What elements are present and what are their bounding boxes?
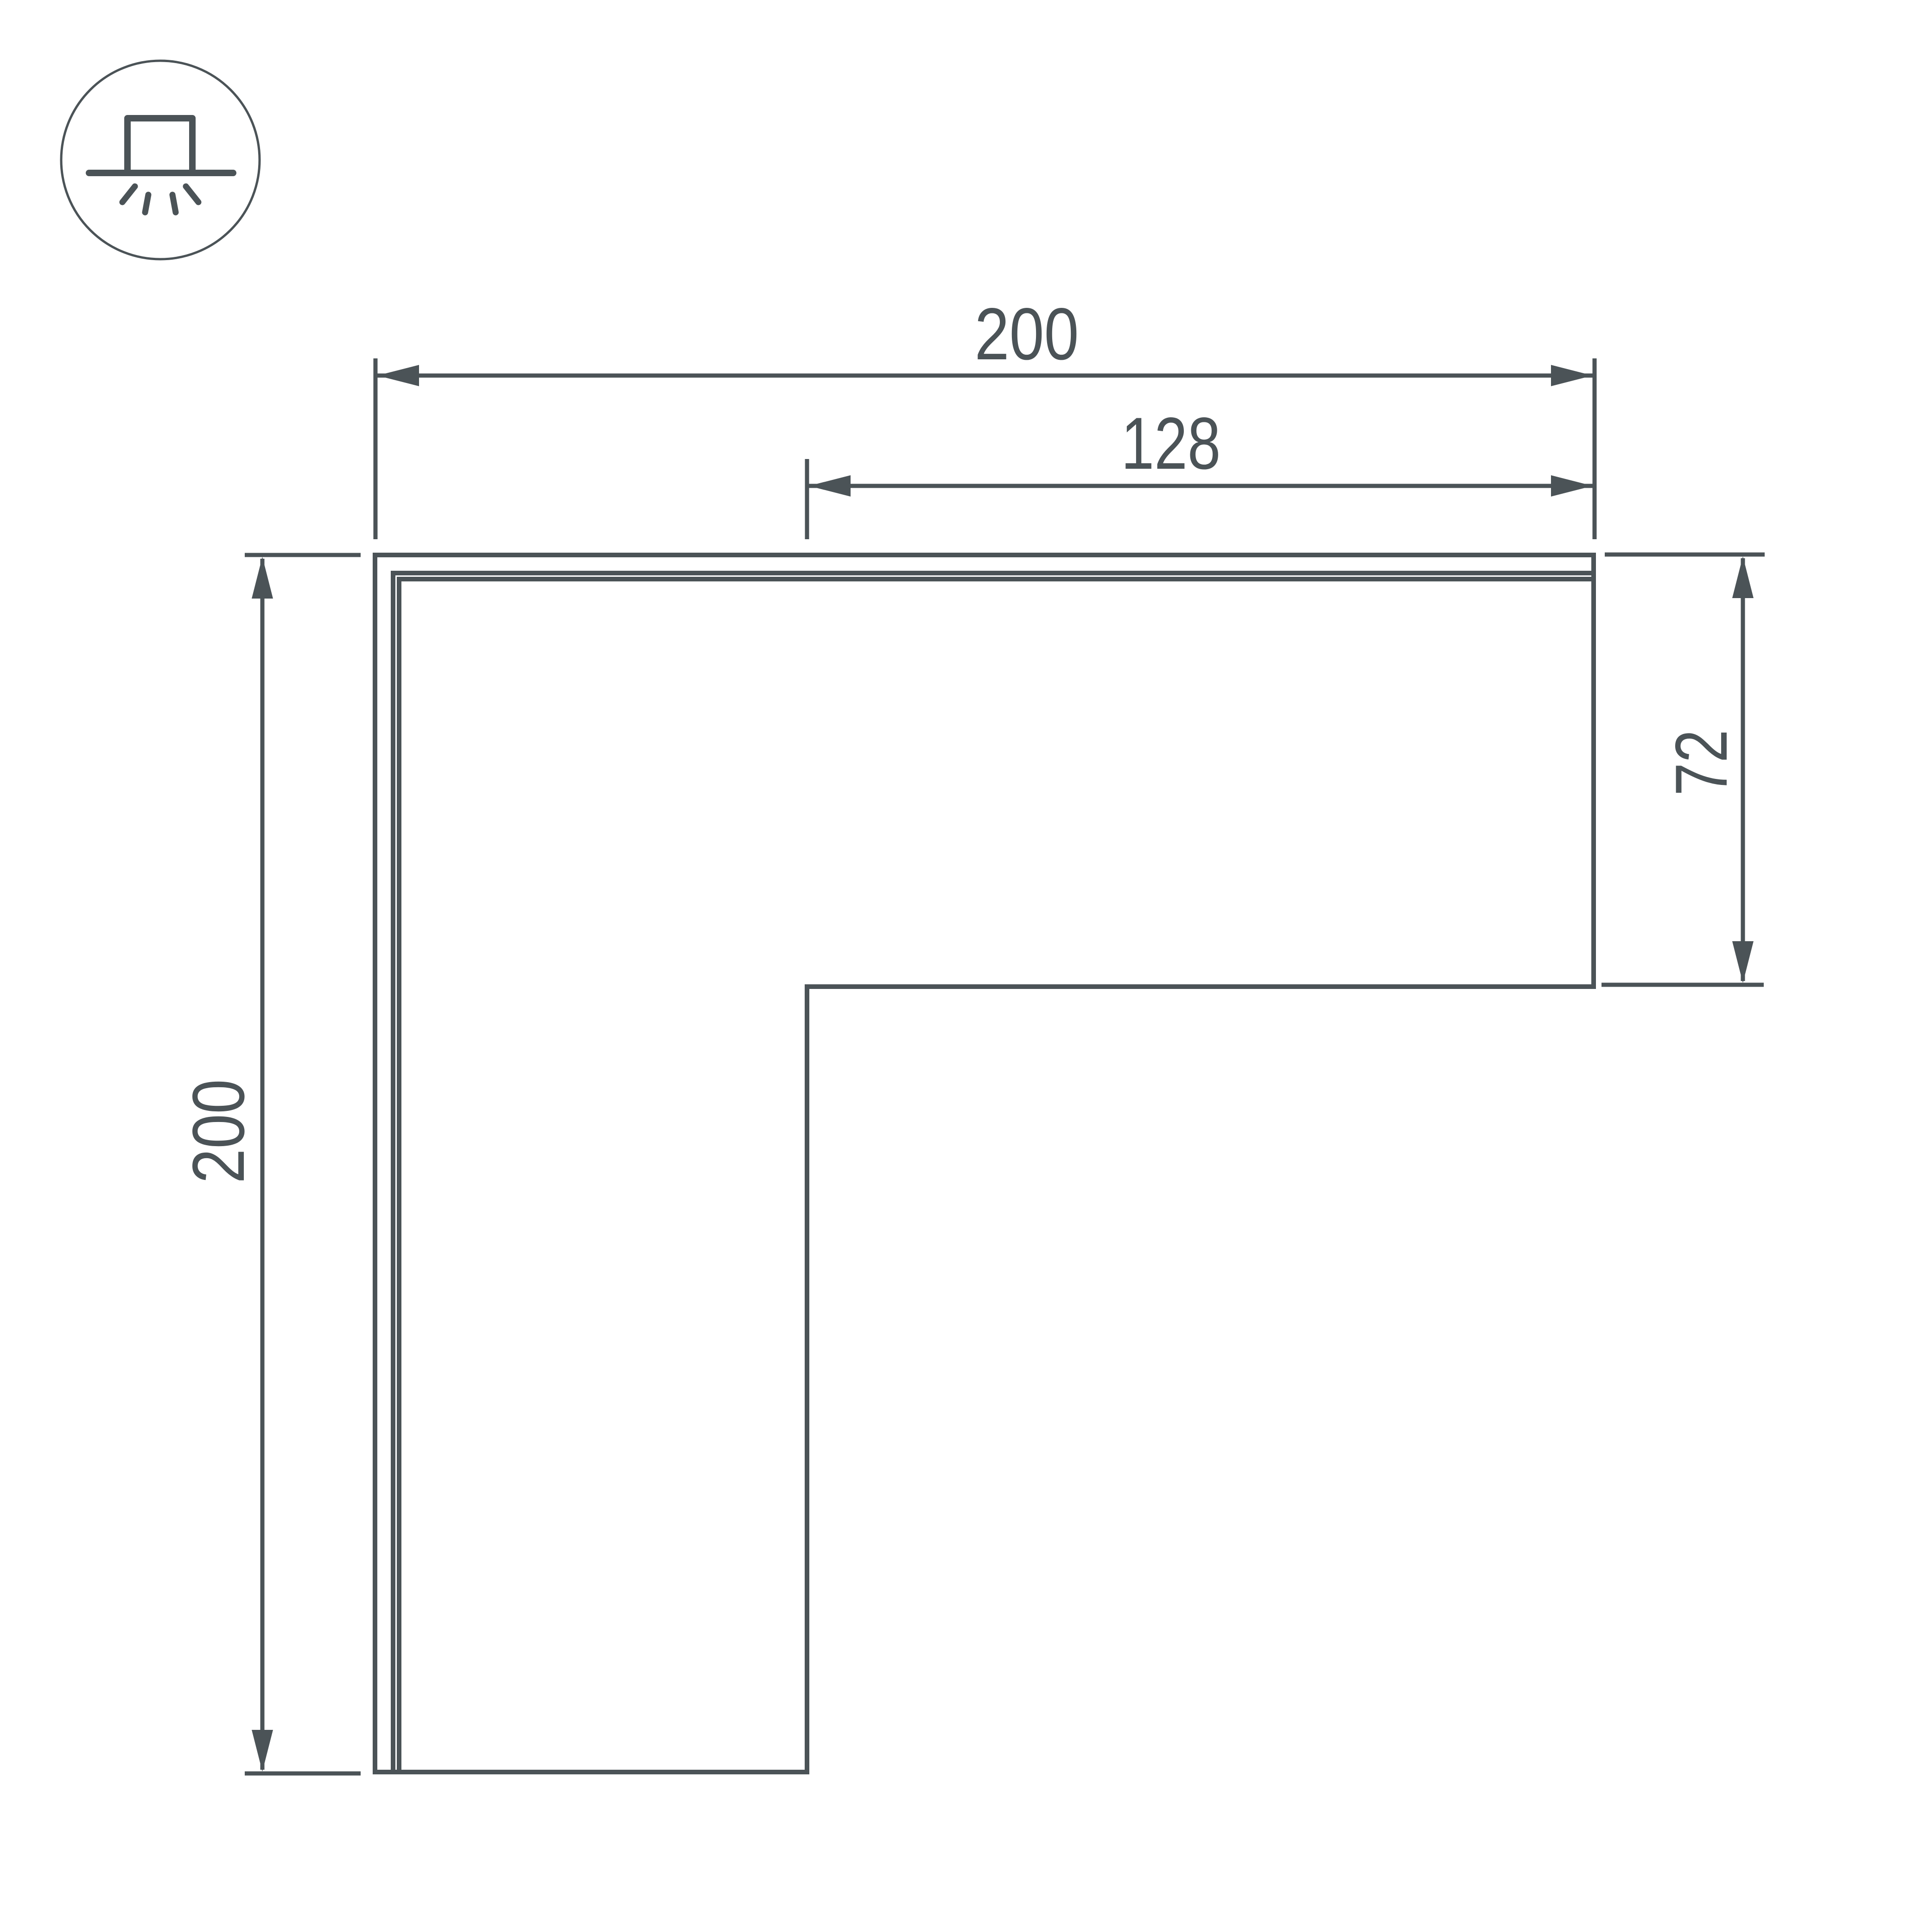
dim-inner-width: 128 — [807, 402, 1593, 539]
arrowhead-bottom — [1732, 941, 1754, 983]
icon-light-ray — [172, 195, 176, 212]
dim-top-width-label: 200 — [975, 293, 1079, 375]
arrowhead-bottom — [252, 1730, 273, 1772]
arrowhead-right — [1551, 475, 1593, 497]
profile-seam-line-inner — [399, 579, 1591, 1770]
arrowhead-left — [377, 365, 419, 386]
profile-outer-outline — [375, 555, 1594, 1772]
corner-connector-profile — [375, 555, 1594, 1772]
arrowhead-right — [1551, 365, 1593, 386]
icon-light-ray — [186, 186, 198, 202]
icon-light-ray — [122, 186, 135, 202]
arrowhead-left — [809, 475, 851, 497]
dim-right-step-height-label: 72 — [1660, 730, 1742, 796]
arrowhead-top — [1732, 556, 1754, 598]
dim-right-step-height: 72 — [1602, 555, 1765, 985]
icon-light-rays — [122, 186, 198, 212]
icon-fixture-box — [127, 118, 192, 172]
dim-left-height-label: 200 — [177, 1079, 260, 1184]
arrowhead-top — [252, 557, 273, 599]
surface-mount-light-icon — [61, 61, 260, 259]
dim-left-height: 200 — [177, 555, 361, 1773]
icon-light-ray — [145, 195, 148, 212]
dim-inner-width-label: 128 — [1121, 402, 1221, 485]
technical-drawing-page: 200 128 200 72 — [0, 0, 1932, 1932]
dim-top-width: 200 — [375, 293, 1595, 539]
corner-connector-drawing: 200 128 200 72 — [0, 0, 1932, 1932]
icon-circle-border — [61, 61, 260, 259]
profile-seam-line-outer — [393, 573, 1591, 1770]
